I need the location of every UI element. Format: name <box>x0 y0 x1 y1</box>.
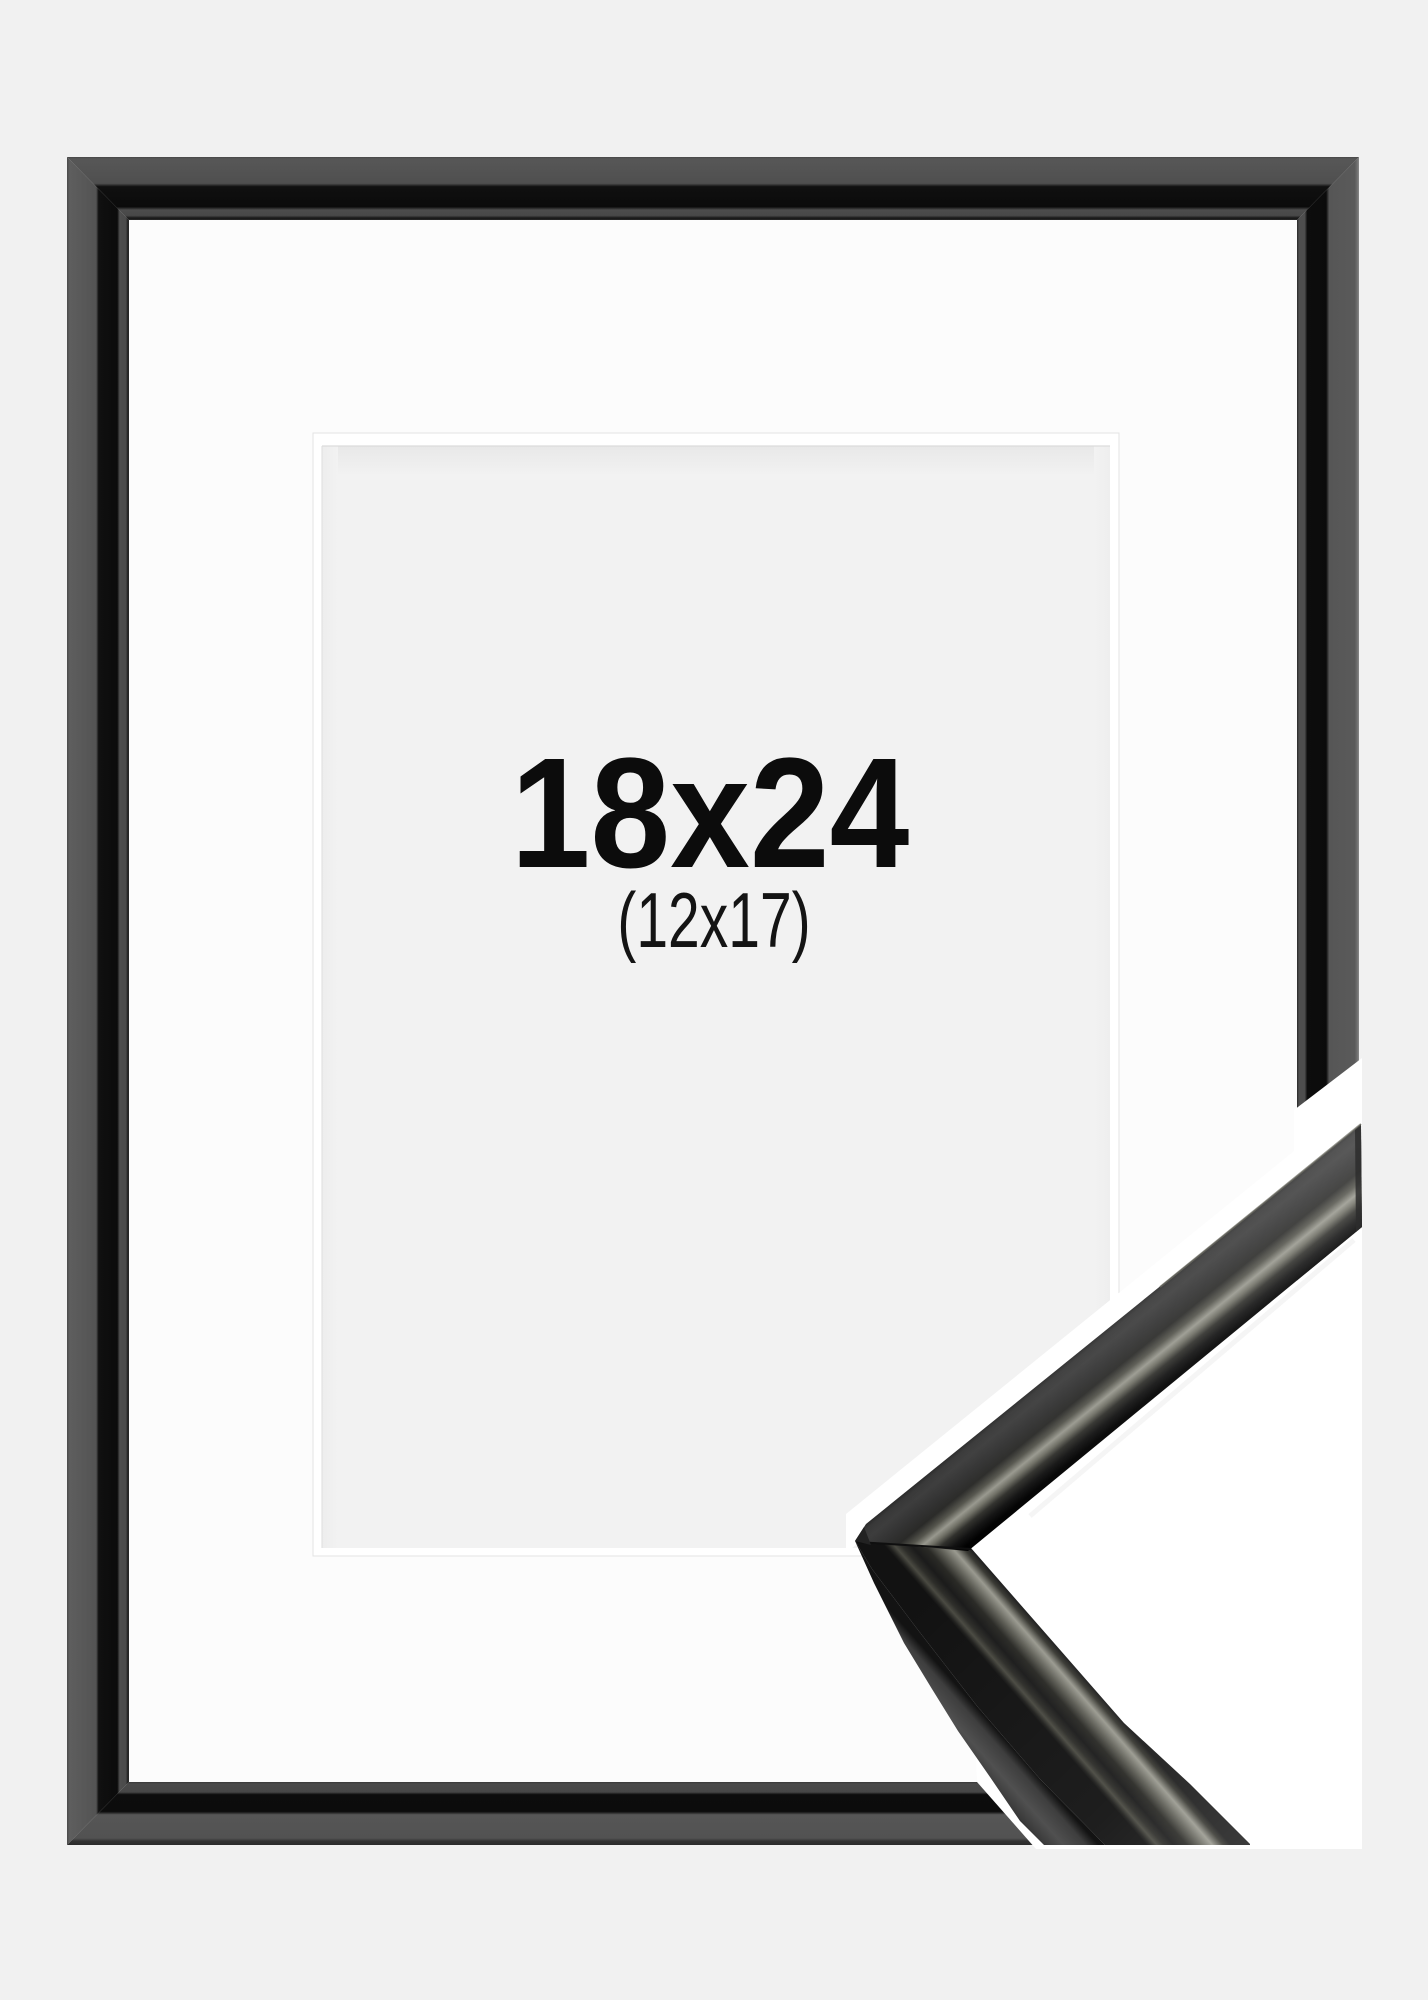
svg-text:18x24: 18x24 <box>511 725 910 900</box>
svg-text:(12x17): (12x17) <box>617 877 810 964</box>
